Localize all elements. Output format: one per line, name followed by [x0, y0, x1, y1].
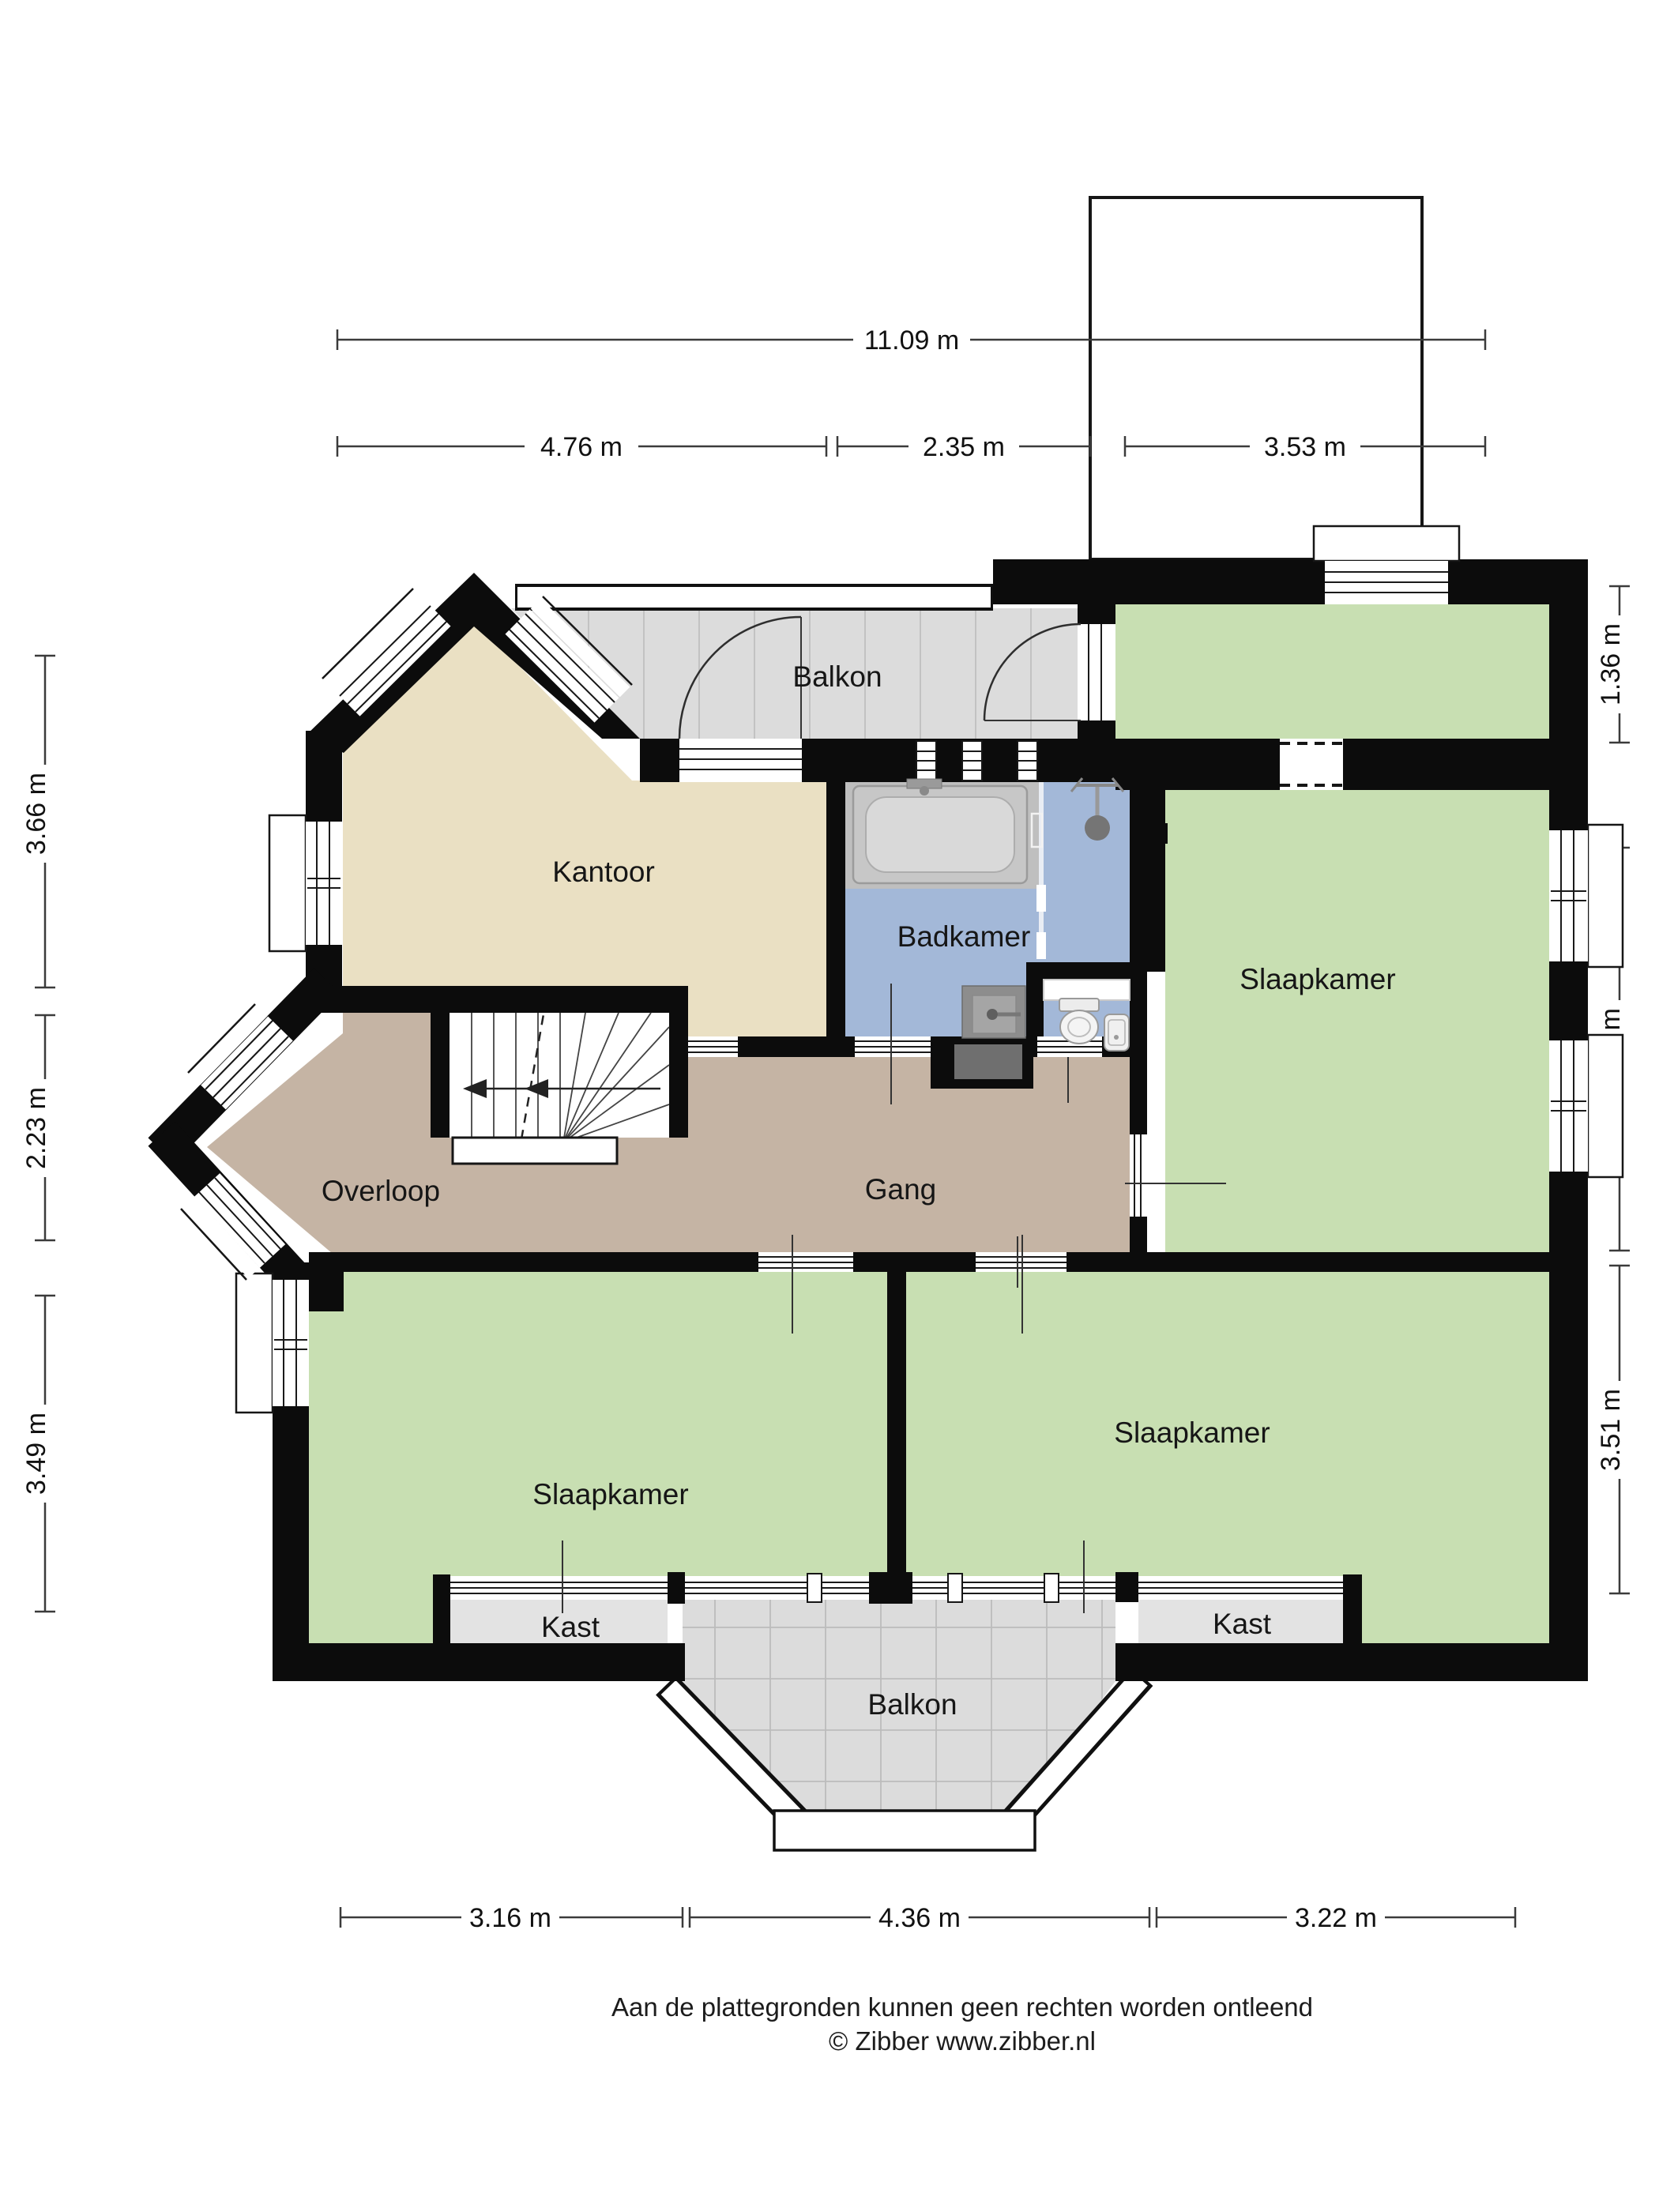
- dim-label-left-1: 2.23 m: [21, 1087, 51, 1169]
- room-label-balkon-bottom: Balkon: [867, 1688, 957, 1721]
- slaapkamer-bl-floor: [309, 1272, 887, 1580]
- footer: Aan de plattegronden kunnen geen rechten…: [611, 1992, 1313, 2056]
- stair-railing: [453, 1138, 617, 1164]
- dim-label-bottom-0: 3.16 m: [469, 1903, 551, 1933]
- room-label-gang: Gang: [865, 1173, 937, 1206]
- green-room-top-floor: [1115, 604, 1549, 739]
- dim-label-left-0: 3.66 m: [21, 773, 51, 855]
- toilet-icon: [1059, 999, 1099, 1044]
- room-label-kantoor: Kantoor: [552, 856, 655, 888]
- chimney-flue: [954, 1044, 1022, 1079]
- room-label-kast-right: Kast: [1213, 1608, 1272, 1640]
- dim-label-top-2: 3.53 m: [1264, 432, 1346, 462]
- dim-label-bottom-2: 3.22 m: [1295, 1903, 1377, 1933]
- gang-floor: [688, 1057, 1130, 1252]
- washbasin-icon: [962, 986, 1025, 1038]
- dim-label-top-0: 4.76 m: [540, 432, 623, 462]
- dim-label-right-0: 1.36 m: [1596, 623, 1626, 705]
- bathtub-icon: [853, 779, 1027, 883]
- room-label-slaapkamer-right: Slaapkamer: [1240, 963, 1395, 995]
- room-label-badkamer: Badkamer: [897, 920, 1031, 953]
- dim-label-bottom-1: 4.36 m: [878, 1903, 961, 1933]
- dim-label-top-1: 2.35 m: [923, 432, 1005, 462]
- room-label-slaapkamer-bl: Slaapkamer: [532, 1478, 688, 1510]
- roof-outline: [1090, 197, 1422, 559]
- room-label-kast-left: Kast: [541, 1611, 600, 1643]
- dim-label-right-2: 3.51 m: [1596, 1389, 1626, 1471]
- footer-credit: © Zibber www.zibber.nl: [829, 2026, 1096, 2056]
- footer-disclaimer: Aan de plattegronden kunnen geen rechten…: [611, 1992, 1313, 2022]
- room-label-overloop: Overloop: [322, 1175, 440, 1207]
- sink-icon: [1104, 1014, 1129, 1051]
- dim-label-left-2: 3.49 m: [21, 1413, 51, 1495]
- toilet-door-leaf: [1044, 980, 1130, 1000]
- dim-label-top-total: 11.09 m: [864, 325, 959, 355]
- room-label-slaapkamer-br: Slaapkamer: [1114, 1416, 1270, 1449]
- room-label-balkon-top: Balkon: [792, 660, 882, 693]
- floorplan-canvas: 11.09 m 4.76 m 2.35 m 3.53 m 3.66 m 2.23…: [0, 0, 1659, 2212]
- floorplan-page: 11.09 m 4.76 m 2.35 m 3.53 m 3.66 m 2.23…: [0, 0, 1659, 2212]
